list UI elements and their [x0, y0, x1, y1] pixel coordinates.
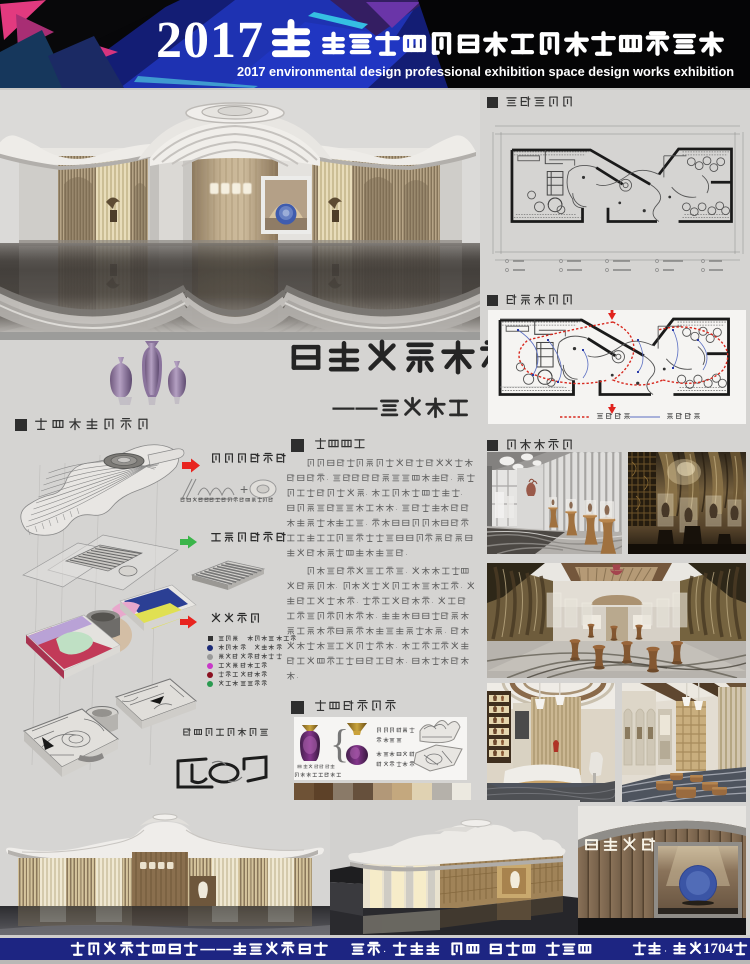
svg-text:{: { — [330, 721, 349, 766]
svg-text:+: + — [240, 481, 248, 497]
